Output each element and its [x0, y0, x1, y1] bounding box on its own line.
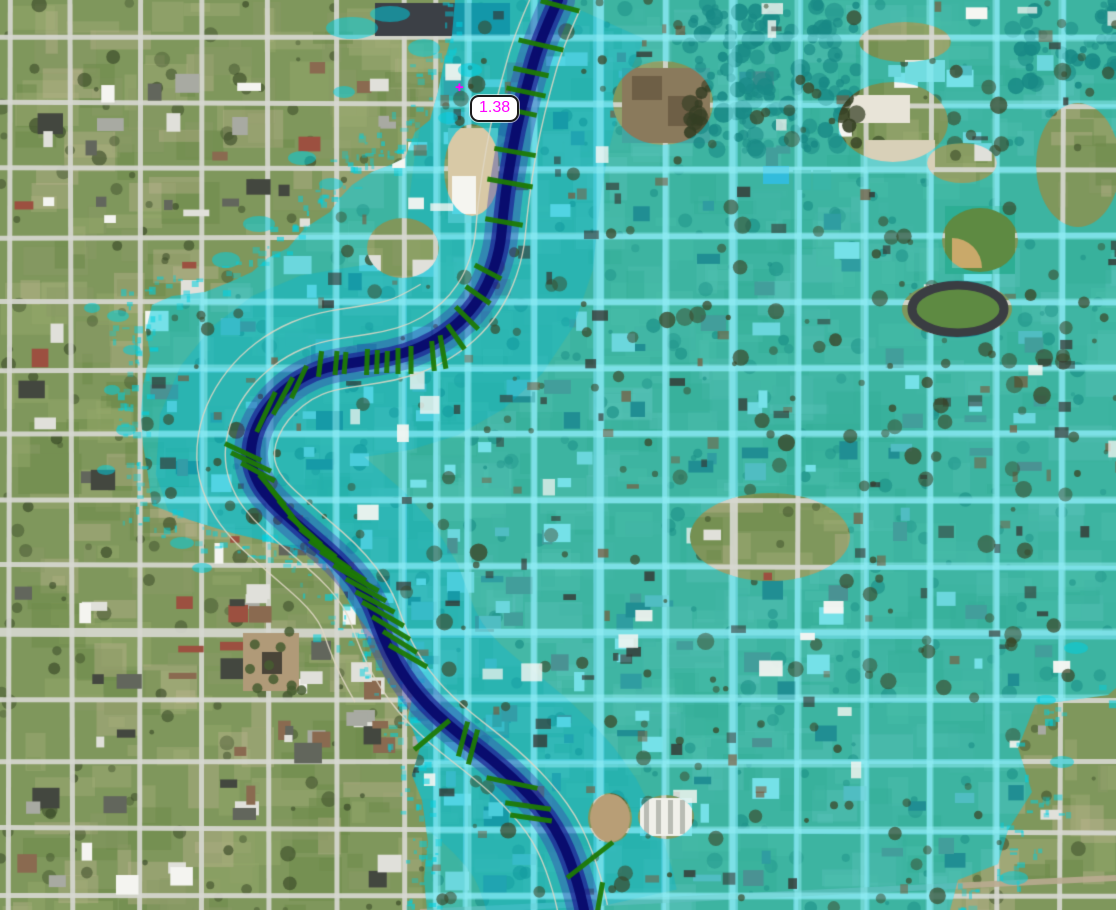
- river-station-label: 1.38: [470, 95, 519, 122]
- map-viewport: + 1.38: [0, 0, 1116, 910]
- station-cross-marker-icon: +: [455, 83, 464, 93]
- aerial-basemap-canvas[interactable]: [0, 0, 1116, 910]
